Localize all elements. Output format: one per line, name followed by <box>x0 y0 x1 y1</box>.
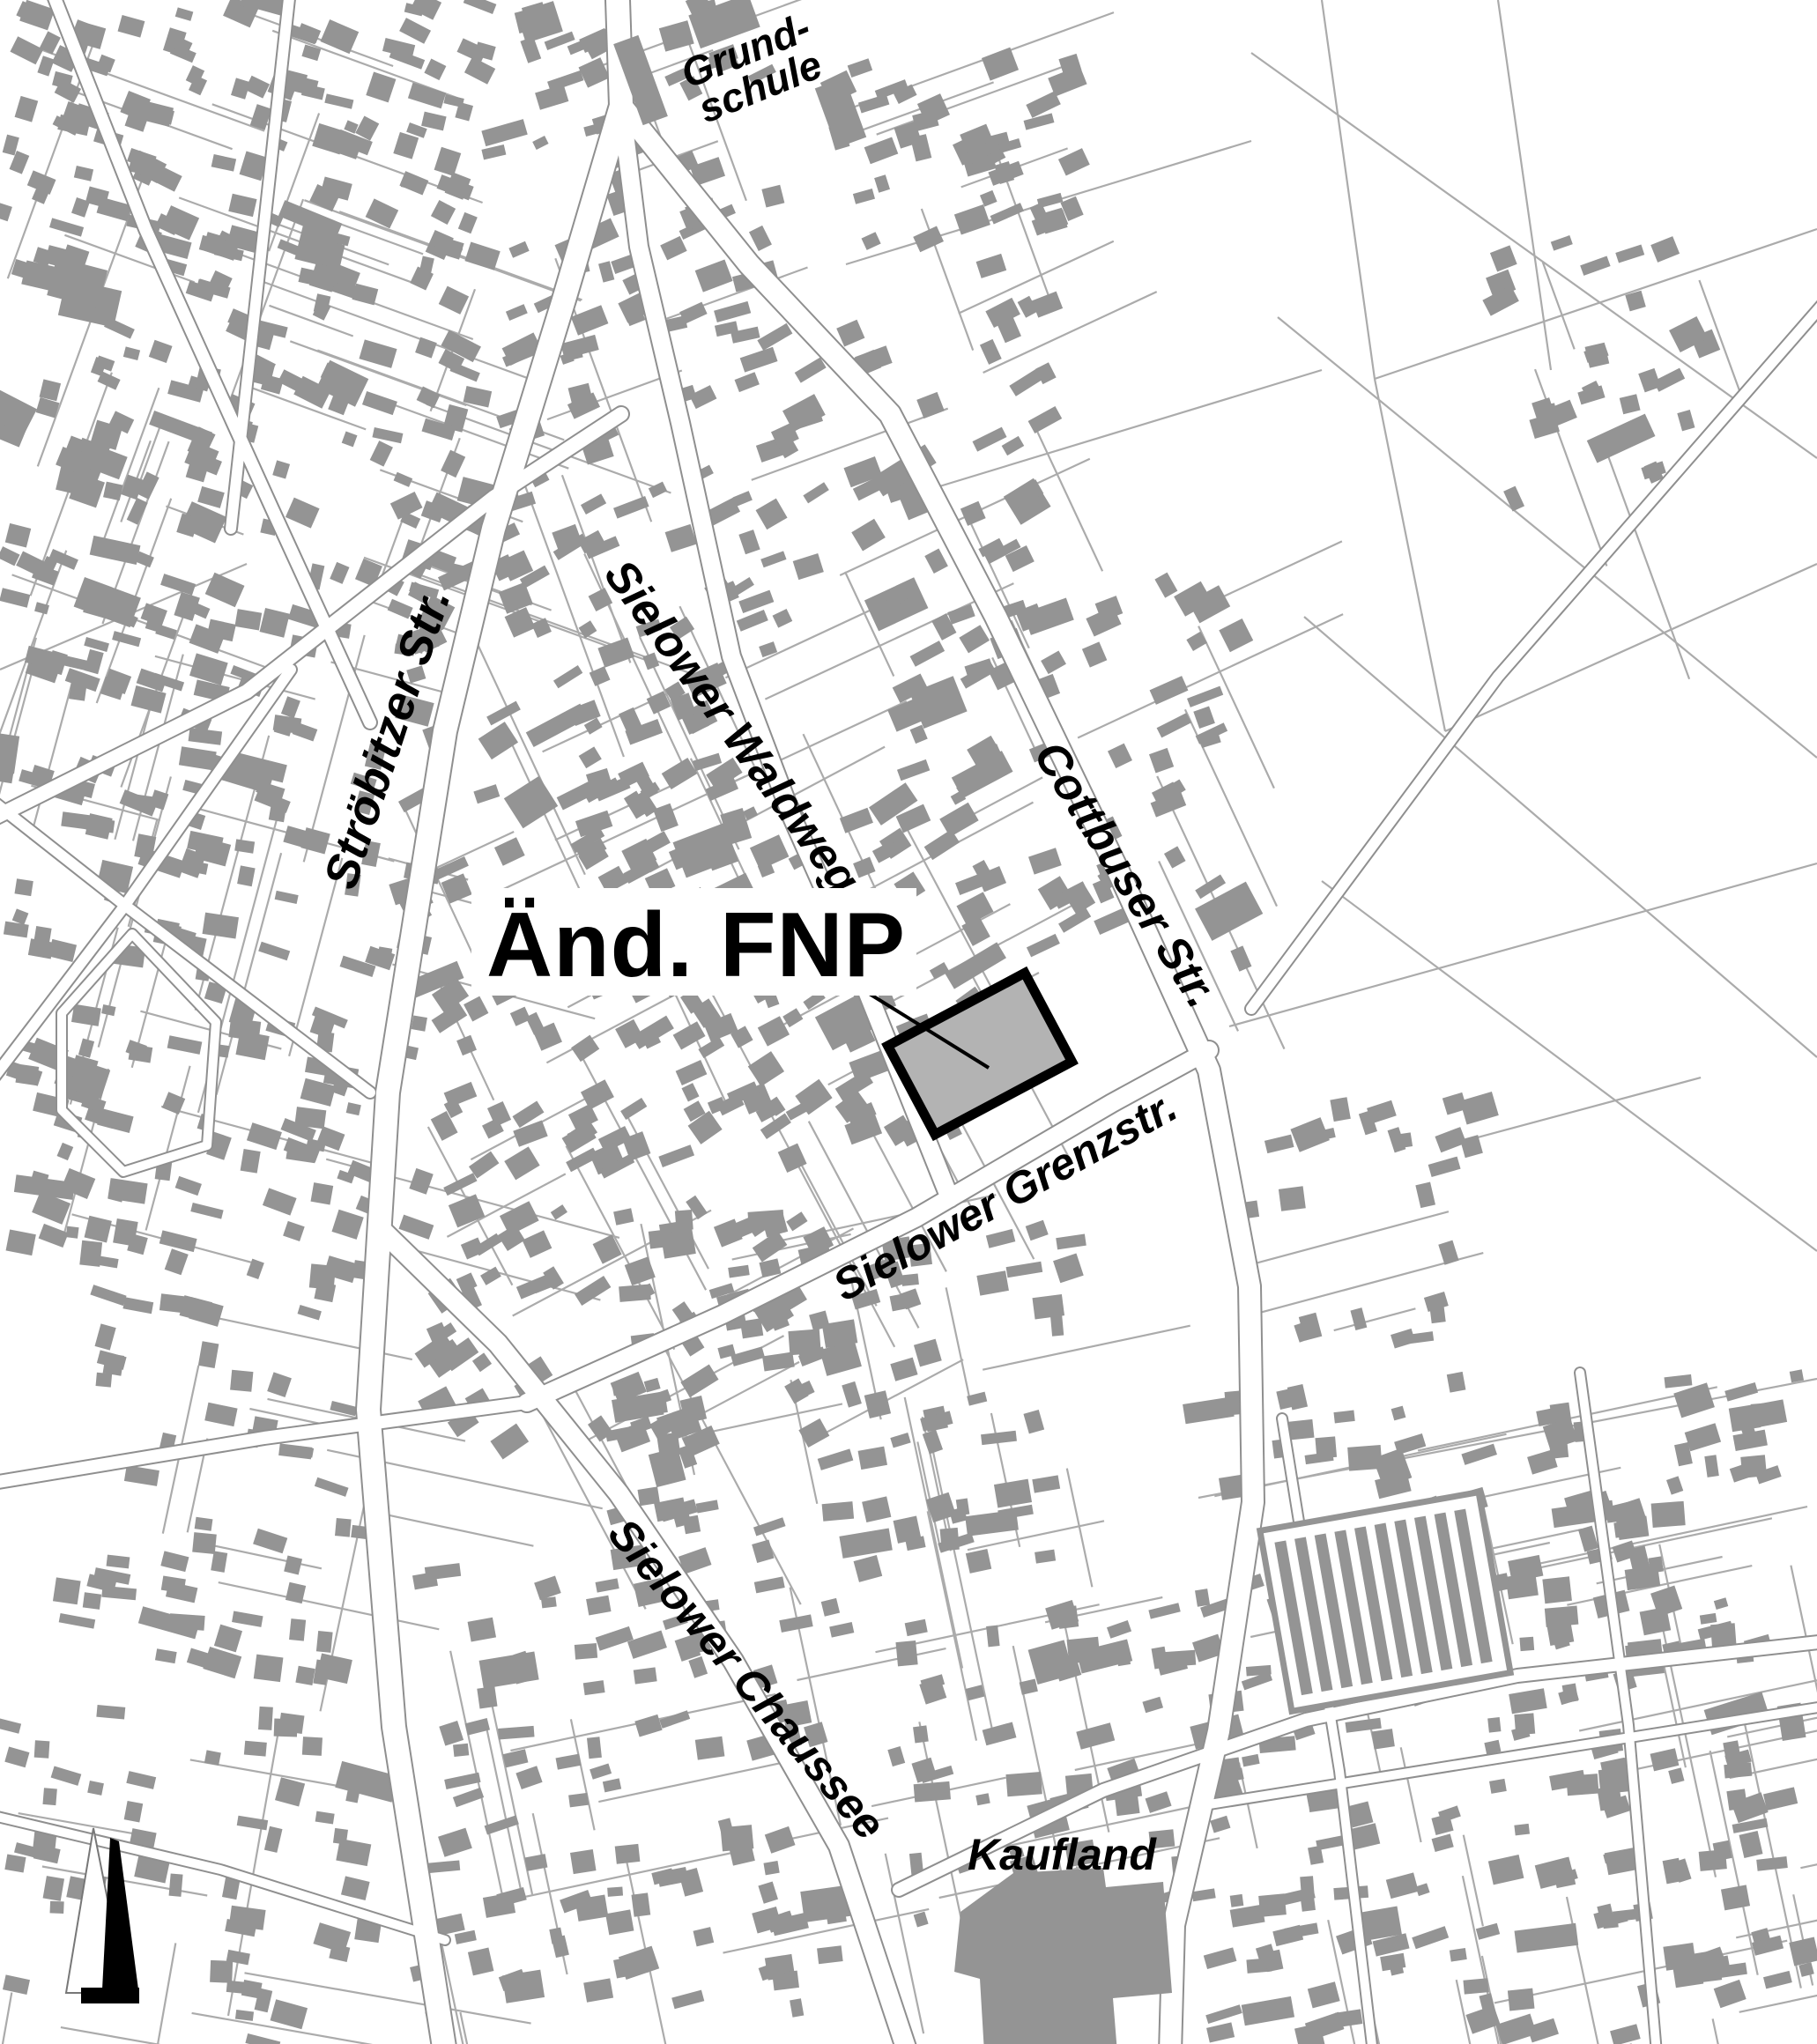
label-kaufland: Kaufland <box>968 1830 1157 1879</box>
greenhouse-rows <box>1260 1492 1510 1712</box>
north-arrow-icon <box>66 1828 139 2003</box>
kaufland-building <box>954 1868 1172 2044</box>
planning-map: Grund- schule Ströbitzer Str. Sielower W… <box>0 0 1817 2044</box>
map-canvas: Grund- schule Ströbitzer Str. Sielower W… <box>0 0 1817 2044</box>
label-aend-fnp: Änd. FNP <box>486 894 906 996</box>
label-cottbuser-str: Cottbuser Str. <box>1024 733 1227 1017</box>
